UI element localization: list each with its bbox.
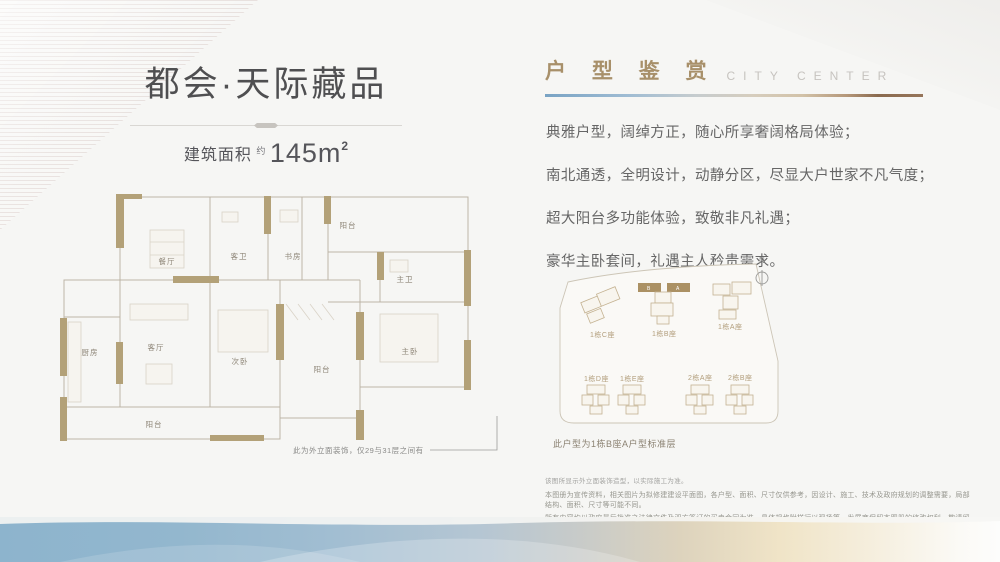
brand-block: 都会·天际藏品 建筑面积 约 145m2 (118, 56, 414, 169)
building-label: 1栋C座 (590, 330, 615, 339)
building-label: 1栋D座 (584, 374, 609, 383)
building-label: 2栋A座 (688, 373, 713, 382)
facade-note: 此为外立面装饰，仅29与31层之间有 (293, 445, 424, 455)
unit-label-a: A (676, 286, 680, 292)
room-label-master-bedroom: 主卧 (402, 346, 419, 356)
area-value: 145m (270, 138, 342, 168)
room-label-dining: 餐厅 (159, 257, 176, 266)
area-superscript: 2 (341, 139, 348, 153)
site-plan: N 1栋C座 B A 1栋B座 1栋A座 1栋D座 1栋E座 (540, 253, 800, 448)
disclaimer-line: 本图册为宣传资料，相关图片为拟修建建设平面图，各户型、面积、尺寸仅供参考，因设计… (545, 491, 975, 511)
building-label: 1栋A座 (718, 322, 743, 331)
band-wave-decoration (0, 517, 1000, 562)
description-line: 超大阳台多功能体验，致敬非凡礼遇； (546, 207, 966, 228)
room-label-master-bath: 主卫 (397, 274, 414, 284)
section-title-cn: 户 型 鉴 赏 (545, 55, 717, 85)
area-approx-mark: 约 (256, 146, 265, 156)
room-label-balcony-bottom: 阳台 (146, 419, 163, 429)
area-label: 建筑面积 (184, 147, 252, 164)
facade-note-leader-line (430, 416, 497, 450)
unit-label-b: B (647, 286, 651, 292)
siteplan-caption: 此户型为1栋B座A户型标准层 (553, 437, 676, 450)
building-label: 1栋E座 (620, 374, 645, 383)
room-label-balcony-top: 阳台 (340, 220, 357, 230)
gradient-divider-bar (545, 94, 923, 97)
bottom-gradient-band (0, 517, 1000, 562)
disclaimer-line: 该图所显示外立面装饰造型，以实际施工为准。 (545, 475, 975, 485)
room-label-kitchen: 厨房 (82, 347, 99, 357)
room-label-study: 书房 (285, 251, 302, 261)
page-title: 都会·天际藏品 (118, 56, 414, 107)
divider-ornament-icon (254, 123, 278, 128)
floor-plan: 餐厅 客卫 书房 阳台 主卫 厨房 客厅 次卧 阳台 主卧 阳台 此为外立面装饰… (50, 192, 502, 460)
room-label-guest-bath: 客卫 (231, 251, 248, 261)
description-line: 典雅户型，阔绰方正，随心所享奢阔格局体验； (546, 121, 966, 142)
building-label: 1栋B座 (652, 329, 677, 338)
section-header: 户 型 鉴 赏 CITY CENTER (545, 55, 894, 85)
building-label: 2栋B座 (728, 373, 753, 382)
title-divider (130, 125, 402, 126)
area-subtitle: 建筑面积 约 145m2 (118, 138, 414, 169)
room-label-bedroom2: 次卧 (232, 356, 249, 366)
room-label-living: 客厅 (148, 342, 165, 352)
section-title-en: CITY CENTER (727, 69, 895, 83)
svg-text:N: N (759, 256, 765, 265)
description-line: 南北通透，全明设计，动静分区，尽显大户世家不凡气度； (546, 164, 966, 185)
room-label-balcony-mid: 阳台 (314, 364, 331, 374)
